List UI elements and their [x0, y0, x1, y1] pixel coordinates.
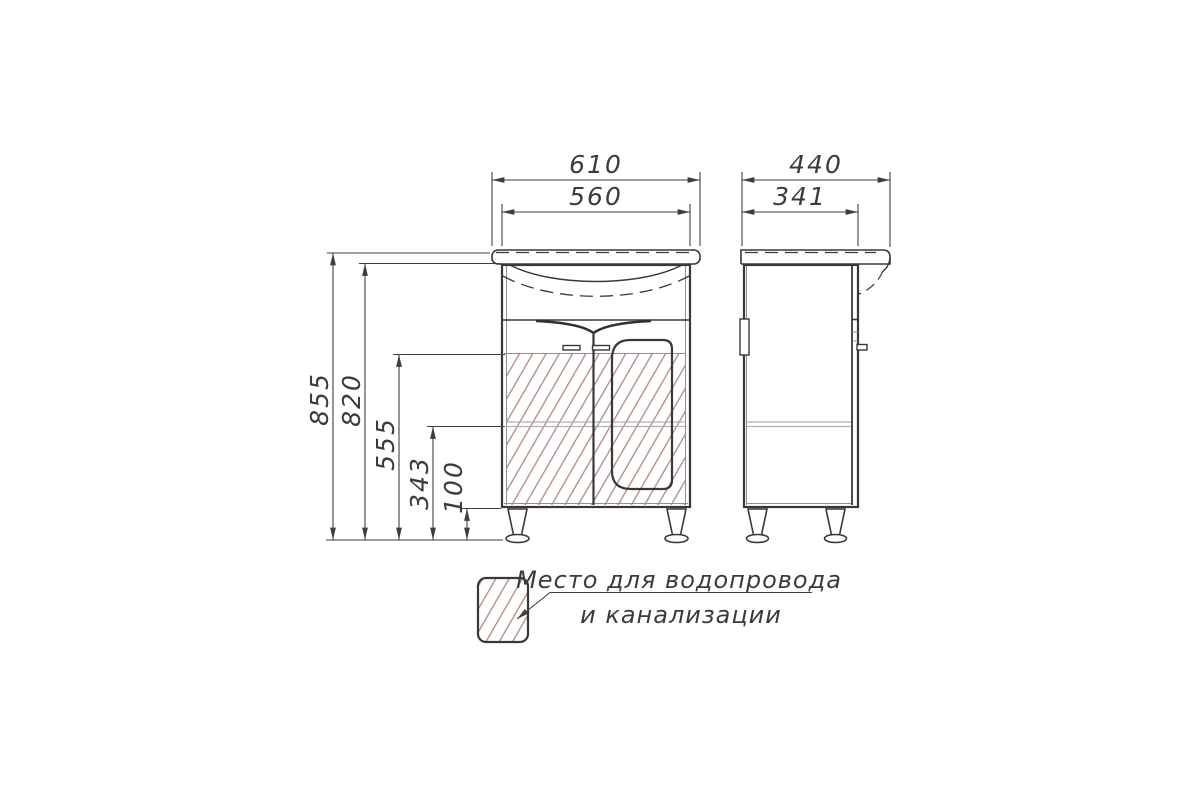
- legend-label-line1: Место для водопровода: [516, 566, 842, 594]
- legend-label-line2: и канализации: [580, 601, 782, 629]
- side-cabinet-body: [744, 265, 858, 507]
- basin-hidden-curve: [503, 276, 689, 296]
- height-dimensions: 855 820 555 343 100: [305, 253, 505, 540]
- basin-front-curve: [510, 265, 682, 282]
- right-door-handle: [593, 346, 610, 351]
- side-legs: [747, 509, 847, 543]
- technical-drawing-page: 610 560 440 341 855 820 555 343 100: [0, 0, 1200, 800]
- front-width-dimensions: 610 560: [492, 150, 700, 246]
- plumbing-zone-hatch: [506, 353, 686, 505]
- dim-label-341: 341: [773, 182, 827, 211]
- dim-label-820: 820: [337, 373, 366, 427]
- side-view: [740, 250, 890, 543]
- front-view: [492, 250, 700, 543]
- dim-label-440: 440: [789, 150, 843, 179]
- left-door-top-curve: [536, 321, 594, 333]
- side-depth-dimensions: 440 341: [742, 150, 890, 247]
- left-door-handle: [563, 346, 580, 351]
- dim-label-555: 555: [371, 417, 400, 471]
- dim-label-100: 100: [439, 460, 468, 514]
- side-shelf-line: [747, 422, 851, 427]
- dim-label-560: 560: [569, 182, 623, 211]
- legend: Место для водопровода и канализации: [478, 566, 842, 642]
- side-door-handle: [857, 345, 867, 351]
- dim-label-610: 610: [569, 150, 623, 179]
- side-basin-hidden-curve: [857, 271, 883, 295]
- front-legs: [506, 509, 688, 543]
- vanity-dimension-drawing: 610 560 440 341 855 820 555 343 100: [0, 0, 1200, 800]
- dim-label-855: 855: [305, 372, 334, 426]
- dim-label-343: 343: [405, 456, 434, 510]
- right-door-top-curve: [594, 321, 652, 333]
- side-back-rail: [740, 319, 749, 355]
